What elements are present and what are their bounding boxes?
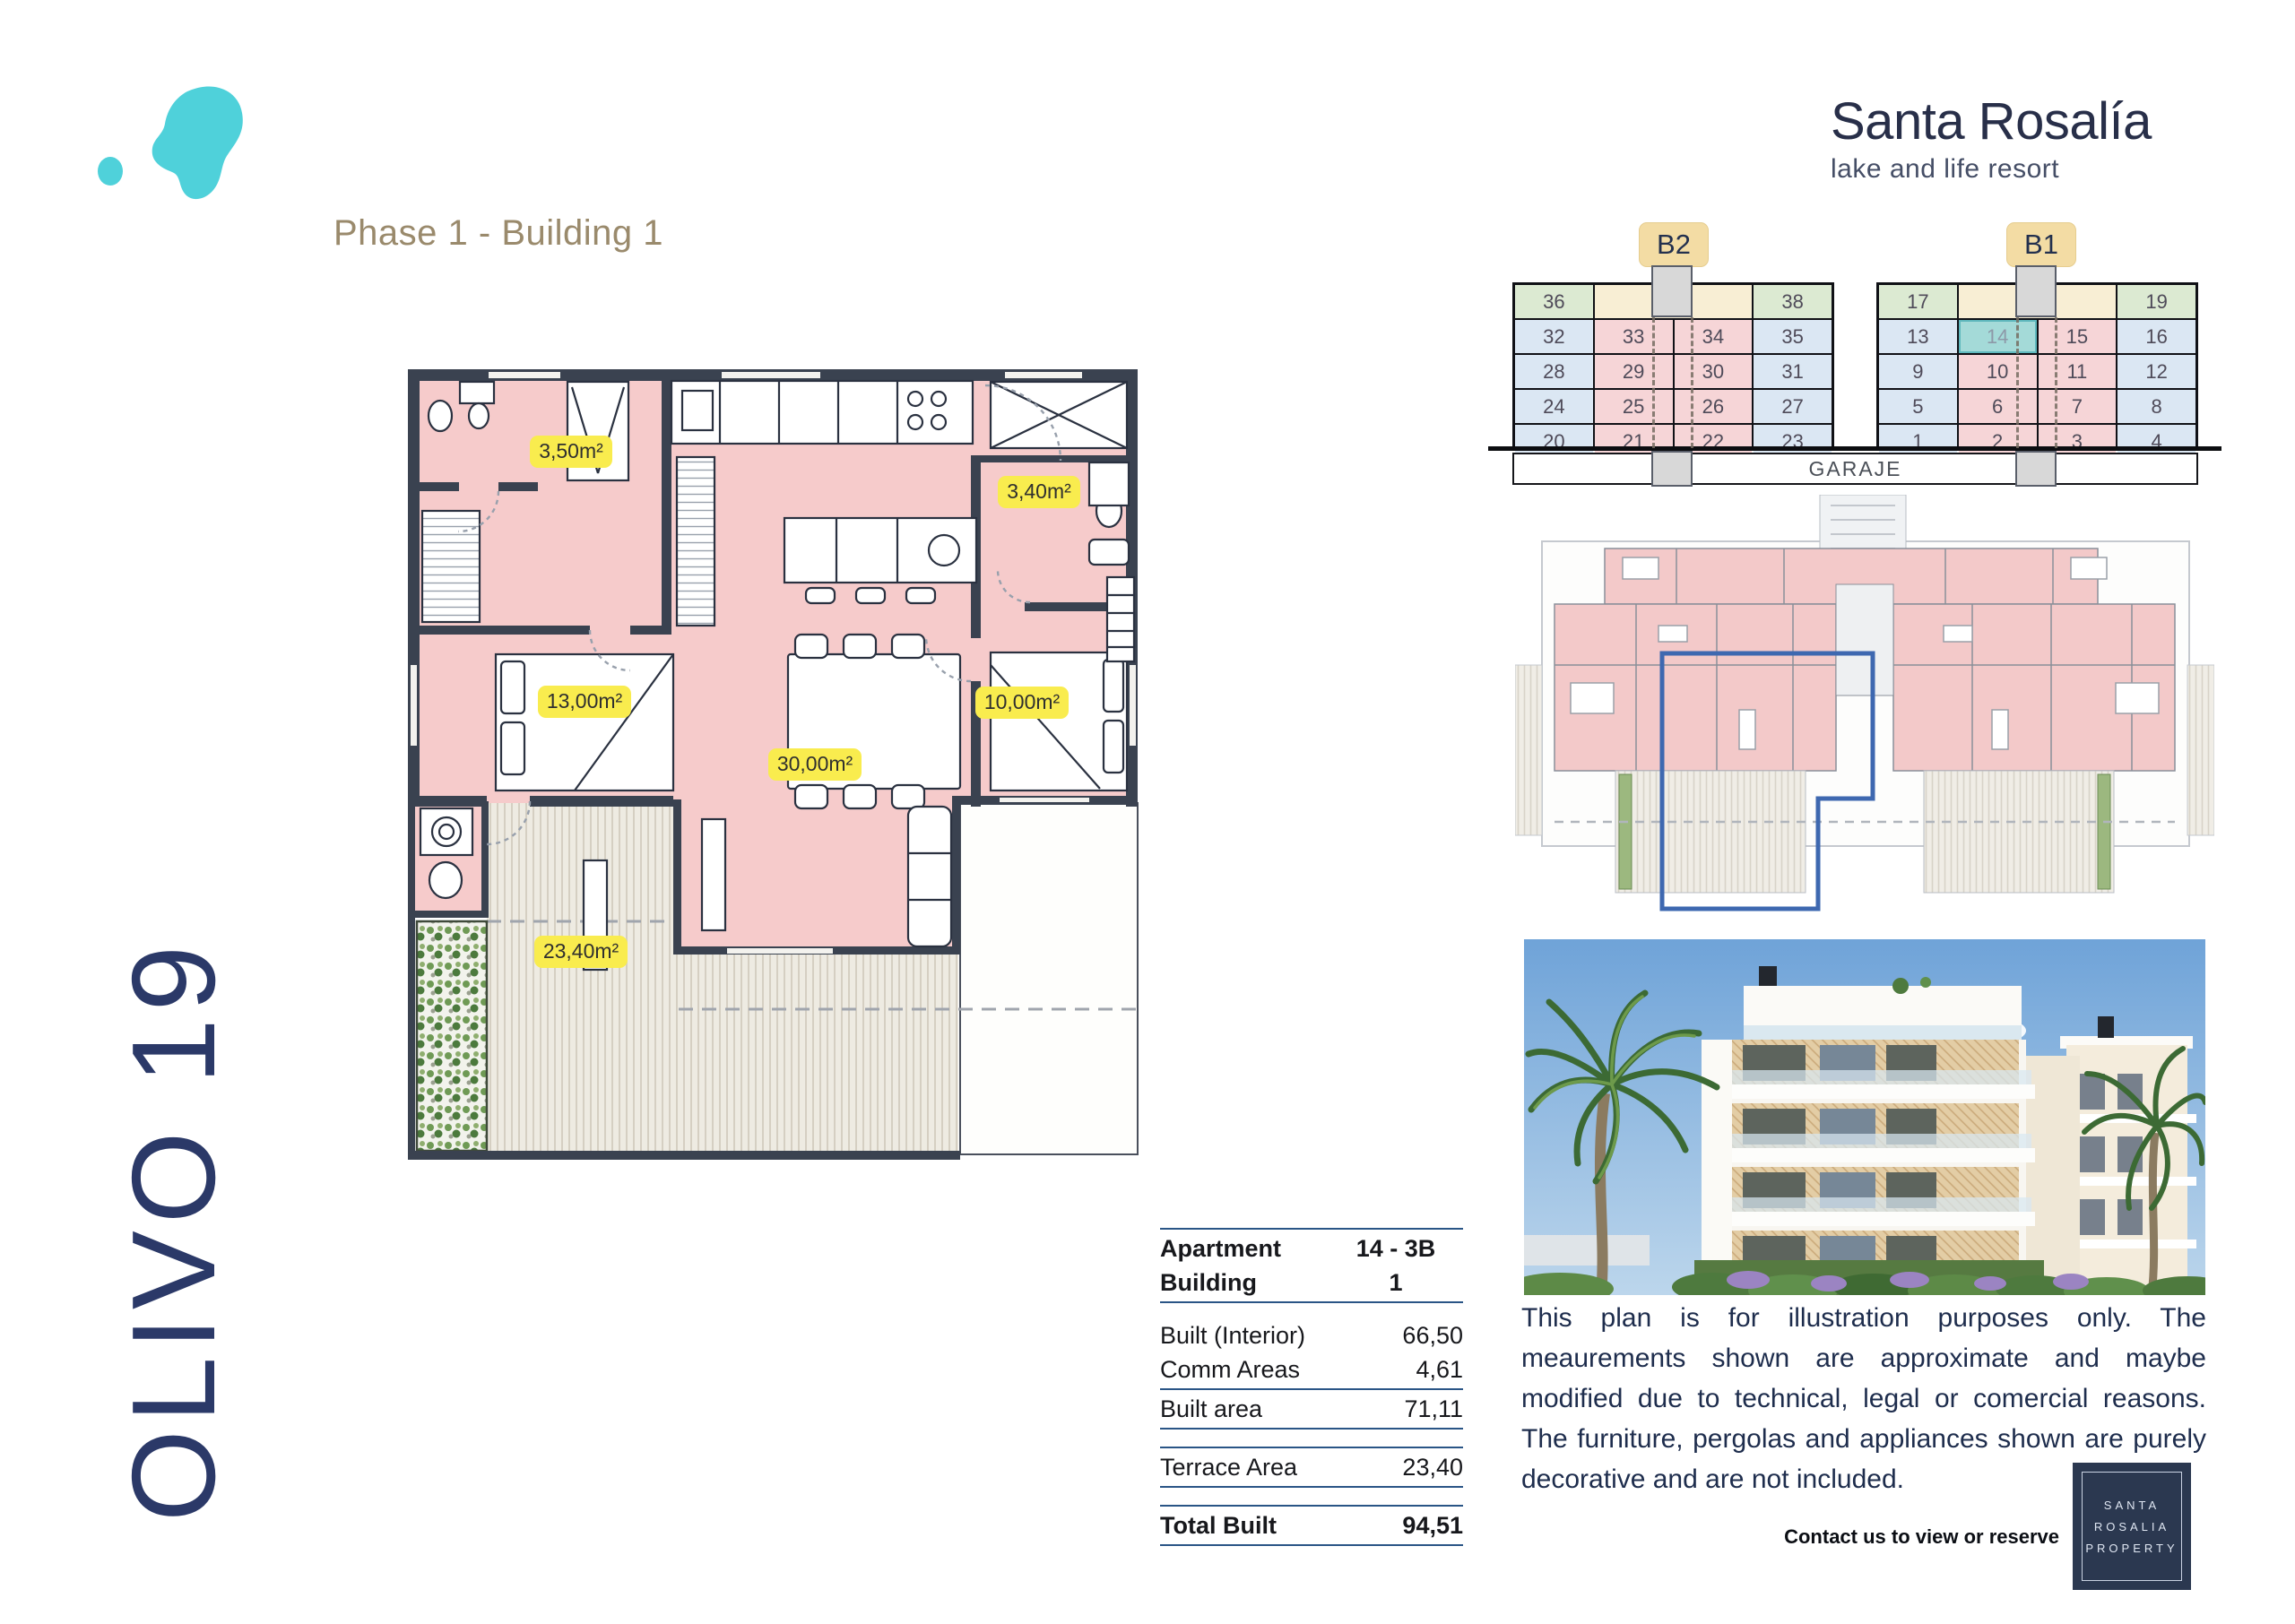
unit-cell-5: 5 bbox=[1879, 390, 1957, 423]
unit-cell-14: 14 bbox=[1959, 320, 2037, 353]
bottom-terrace bbox=[1924, 771, 2114, 893]
unit-cell-17: 17 bbox=[1879, 285, 1957, 318]
detail-value: 94,51 bbox=[1329, 1512, 1463, 1540]
overview-floor-plan bbox=[1515, 495, 2214, 929]
detail-label: Built area bbox=[1160, 1395, 1329, 1423]
unit-cell-33: 33 bbox=[1595, 320, 1673, 353]
elevator-shaft bbox=[2015, 265, 2057, 317]
block-tab-b2: B2 bbox=[1639, 222, 1709, 267]
shaft-dashed-line bbox=[2016, 317, 2019, 448]
detail-label: Built (Interior) bbox=[1160, 1322, 1329, 1350]
detail-row-building: Building1 bbox=[1160, 1266, 1463, 1300]
table-divider bbox=[1160, 1228, 1463, 1230]
table-spacer bbox=[1160, 1431, 1463, 1445]
detail-row-built-interior-: Built (Interior)66,50 bbox=[1160, 1318, 1463, 1352]
property-logo-line: PROPERTY bbox=[2085, 1542, 2178, 1555]
unit-cell-7: 7 bbox=[2039, 390, 2117, 423]
ground-line bbox=[1488, 446, 2221, 451]
shaft-dashed-line bbox=[1691, 317, 1693, 448]
unit-cell-25: 25 bbox=[1595, 390, 1673, 423]
shaft-dashed-line bbox=[2055, 317, 2057, 448]
side-terrace bbox=[2187, 665, 2214, 835]
unit-cell-28: 28 bbox=[1515, 355, 1593, 388]
logo-lake-blob bbox=[152, 86, 243, 199]
unit-cell-15: 15 bbox=[2039, 320, 2117, 353]
detail-row-comm-areas: Comm Areas4,61 bbox=[1160, 1352, 1463, 1386]
terrace-planter bbox=[417, 921, 487, 1151]
detail-value: 1 bbox=[1329, 1269, 1463, 1297]
elevator-shaft bbox=[1651, 265, 1693, 317]
detail-value: 71,11 bbox=[1329, 1395, 1463, 1423]
detail-label: Apartment bbox=[1160, 1235, 1329, 1263]
brand-lockup: Santa Rosalía lake and life resort bbox=[1831, 93, 2207, 185]
unit-cell-36: 36 bbox=[1515, 285, 1593, 318]
unit-cell-8: 8 bbox=[2117, 390, 2195, 423]
detail-label: Comm Areas bbox=[1160, 1356, 1329, 1384]
logo-dot bbox=[98, 157, 123, 186]
brand-name: Santa Rosalía bbox=[1831, 93, 2207, 151]
unit-cell-19: 19 bbox=[2117, 285, 2195, 318]
room-area-label: 3,40m² bbox=[1007, 479, 1071, 503]
table-divider bbox=[1160, 1486, 1463, 1488]
detail-label: Total Built bbox=[1160, 1512, 1329, 1540]
contact-line: Contact us to view or reserve bbox=[1521, 1525, 2059, 1549]
unit-cell-6: 6 bbox=[1959, 390, 2037, 423]
unit-cell-13: 13 bbox=[1879, 320, 1957, 353]
open-court bbox=[960, 803, 1138, 1154]
unit-cell-31: 31 bbox=[1754, 355, 1832, 388]
garage-row: GARAJE bbox=[1512, 453, 2198, 485]
table-spacer bbox=[1160, 1490, 1463, 1503]
detail-row-total-built: Total Built94,51 bbox=[1160, 1508, 1463, 1542]
terrace-deck bbox=[487, 801, 679, 1154]
detail-row-terrace-area: Terrace Area23,40 bbox=[1160, 1450, 1463, 1484]
detail-row-built-area: Built area71,11 bbox=[1160, 1392, 1463, 1426]
detail-label: Building bbox=[1160, 1269, 1329, 1297]
phase-heading: Phase 1 - Building 1 bbox=[333, 213, 663, 254]
brand-tagline: lake and life resort bbox=[1831, 154, 2207, 185]
room-area-label: 23,40m² bbox=[543, 939, 619, 963]
table-divider bbox=[1160, 1447, 1463, 1448]
room-area-label: 13,00m² bbox=[547, 689, 623, 713]
elevator-shaft bbox=[1651, 451, 1693, 487]
brochure-page: Phase 1 - Building 1 Santa Rosalía lake … bbox=[0, 0, 2295, 1624]
unit-cell-35: 35 bbox=[1754, 320, 1832, 353]
table-divider bbox=[1160, 1428, 1463, 1430]
property-logo-frame: SANTA ROSALIA PROPERTY bbox=[2082, 1472, 2182, 1581]
unit-cell-26: 26 bbox=[1675, 390, 1753, 423]
unit-cell-10: 10 bbox=[1959, 355, 2037, 388]
table-divider bbox=[1160, 1544, 1463, 1546]
unit-cell-12: 12 bbox=[2117, 355, 2195, 388]
property-logo-line: ROSALIA bbox=[2094, 1520, 2169, 1533]
table-divider bbox=[1160, 1388, 1463, 1390]
unit-cell-30: 30 bbox=[1675, 355, 1753, 388]
unit-cell-16: 16 bbox=[2117, 320, 2195, 353]
table-spacer bbox=[1160, 1305, 1463, 1318]
unit-cell-38: 38 bbox=[1754, 285, 1832, 318]
planter-strip bbox=[2098, 774, 2110, 889]
block-tab-b1: B1 bbox=[2006, 222, 2076, 267]
room-area-label: 30,00m² bbox=[777, 752, 853, 775]
background-building bbox=[2060, 1016, 2196, 1295]
property-logo-line: SANTA bbox=[2104, 1499, 2160, 1512]
room-area-label: 10,00m² bbox=[984, 690, 1061, 713]
detail-label: Terrace Area bbox=[1160, 1454, 1329, 1481]
unit-cell-24: 24 bbox=[1515, 390, 1593, 423]
unit-cell-27: 27 bbox=[1754, 390, 1832, 423]
detail-value: 4,61 bbox=[1329, 1356, 1463, 1384]
elevator-core bbox=[1836, 584, 1893, 695]
availability-grid: B2 B1 3637383233343528293031242526272021… bbox=[1512, 222, 2230, 496]
property-logo: SANTA ROSALIA PROPERTY bbox=[2073, 1463, 2191, 1590]
apartment-details-table: Apartment14 - 3BBuilding1Built (Interior… bbox=[1160, 1226, 1463, 1548]
table-divider bbox=[1160, 1301, 1463, 1303]
shaft-dashed-line bbox=[1652, 317, 1655, 448]
table-divider bbox=[1160, 1505, 1463, 1507]
apartment-floor-plan: 3,50m² 3,40m² 13,00m² 10,00m² 30,00m² 23… bbox=[408, 369, 1145, 1178]
detail-value: 23,40 bbox=[1329, 1454, 1463, 1481]
unit-cell-29: 29 bbox=[1595, 355, 1673, 388]
room-area-label: 3,50m² bbox=[539, 439, 603, 462]
side-terrace bbox=[1515, 665, 1542, 835]
resort-lake-logo bbox=[86, 79, 274, 213]
detail-row-apartment: Apartment14 - 3B bbox=[1160, 1231, 1463, 1266]
bottom-terrace bbox=[1615, 771, 1806, 893]
unit-cell-11: 11 bbox=[2039, 355, 2117, 388]
planter-strip bbox=[1619, 774, 1632, 889]
building-photo bbox=[1524, 939, 2205, 1295]
detail-value: 14 - 3B bbox=[1329, 1235, 1463, 1263]
unit-cell-9: 9 bbox=[1879, 355, 1957, 388]
detail-value: 66,50 bbox=[1329, 1322, 1463, 1350]
elevator-shaft bbox=[2015, 451, 2057, 487]
terrace-deck bbox=[679, 952, 958, 1154]
unit-cell-34: 34 bbox=[1675, 320, 1753, 353]
project-name-vertical: OLIVO 19 bbox=[106, 827, 267, 1522]
unit-cell-32: 32 bbox=[1515, 320, 1593, 353]
